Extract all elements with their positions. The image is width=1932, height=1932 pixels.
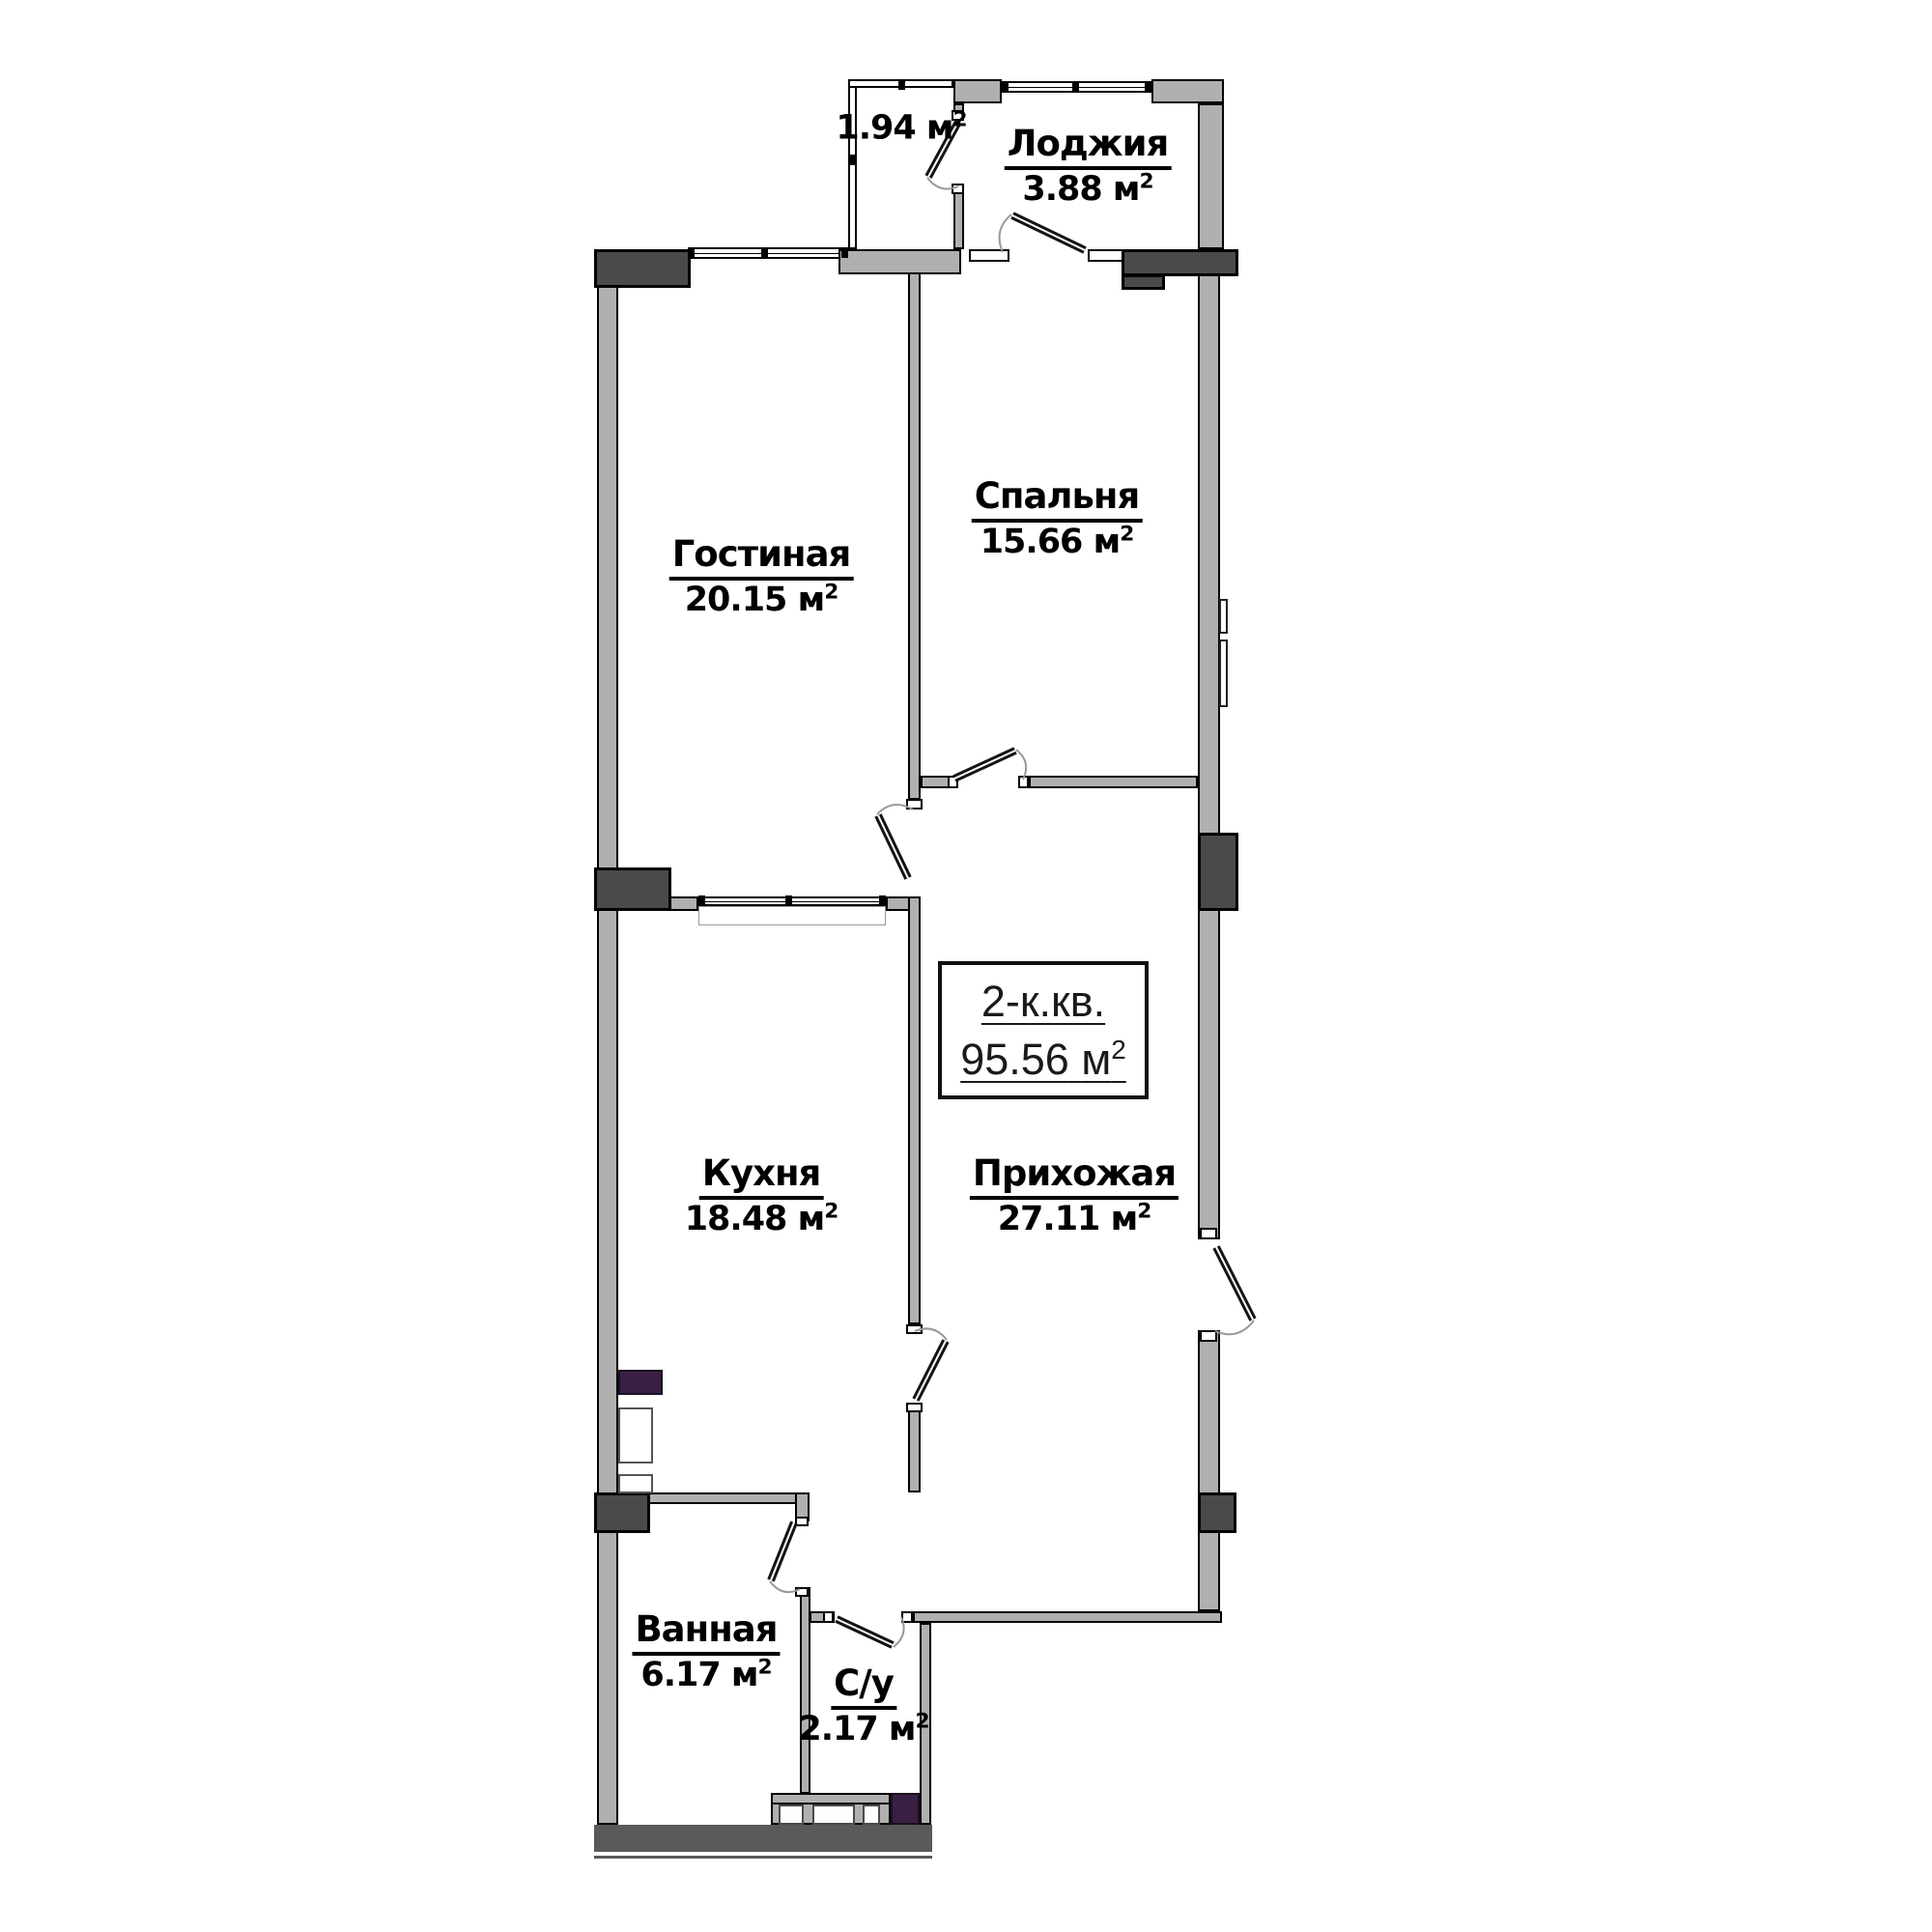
mullion [1072,81,1079,92]
vent-bottom-c [863,1804,880,1825]
mullion [761,247,768,258]
mullion [698,895,705,906]
wall-hall-bottom [913,1611,1222,1623]
column-top-left [594,249,691,288]
apartment-summary-box: 2-к.кв. 95.56 м2 [938,961,1149,1099]
cap-bedroom-door-right [1018,776,1029,788]
room-area: 27.11 м2 [970,1200,1179,1239]
room-label-balcony: 1.94 м2 [836,108,966,148]
vent-bottom-b [812,1804,855,1825]
wall-bedroom-stub [921,776,950,788]
column-left-lower [594,1492,650,1533]
mullion [879,895,886,906]
door-leaf-wc [837,1619,893,1645]
cap-kitchen-door-bottom [906,1403,923,1412]
wall-kitchen-right-upper [908,896,921,1324]
wall-balcony-loggia-lower [953,185,964,249]
cap-bath-door-bottom [795,1587,809,1597]
floor-plan: 1.94 м2 Лоджия 3.88 м2 Спальня 15.66 м2 … [0,0,1932,1932]
living-window [688,247,848,259]
column-right-lower [1198,1492,1236,1533]
room-area: 3.88 м2 [1005,170,1172,210]
cap-bedroom-door-left [948,776,958,788]
mullion [1002,81,1009,92]
room-area: 20.15 м2 [669,581,854,620]
bedroom-window-left [969,249,1009,262]
wall-kitchen-top-left [669,896,698,911]
column-top-right-b [1122,274,1165,290]
arc-loggia-bedroom-door [1000,214,1011,252]
door-leaf-bedroom [954,751,1015,779]
cap-wc-door-right [901,1611,913,1623]
room-name: Ванная [632,1608,780,1656]
door-leaf-living [878,815,908,878]
room-label-loggia: Лоджия 3.88 м2 [1005,123,1172,210]
cap-entry-door-top [1200,1228,1217,1239]
column-mid-left [594,867,671,911]
shaft-kitchen-a [618,1407,653,1463]
room-name: Лоджия [1005,123,1172,170]
door-leaves [771,122,1253,1645]
accent-block-kitchen [618,1370,663,1395]
room-area: 2.17 м2 [798,1710,928,1749]
room-name: Гостиная [669,533,854,581]
mullion [688,247,695,258]
door-leaf-kitchen [916,1341,946,1400]
room-label-wc: С/у 2.17 м2 [798,1662,928,1749]
room-name: Спальня [972,475,1143,523]
wall-right-exterior-upper [1198,249,1220,1239]
cap-balcony-door-bottom [952,184,964,194]
room-label-living: Гостиная 20.15 м2 [669,533,854,620]
room-label-bedroom: Спальня 15.66 м2 [972,475,1143,562]
mullion [785,895,792,906]
cap-kitchen-door-top [906,1324,923,1334]
cap-living-wall-end [906,799,923,810]
room-name: С/у [831,1662,896,1710]
cap-entry-door-bottom [1200,1330,1217,1342]
mullion [841,247,848,258]
wall-right-exterior-lower [1198,1330,1220,1611]
wall-left-exterior [597,249,618,1825]
door-leaf-bath [771,1522,794,1580]
apartment-total-area: 95.56 м2 [960,1035,1126,1085]
mullion [898,79,905,90]
wall-top-center-mass [838,249,961,274]
column-right-mid [1198,833,1238,911]
bottom-slab [594,1825,932,1852]
cap-bath-door-top [795,1517,809,1526]
door-leaf-entry [1216,1247,1253,1320]
apartment-type-label: 2-к.кв. [981,977,1105,1027]
kitchen-interior-window [698,896,886,906]
duct-bedroom-a [1219,599,1228,634]
room-label-kitchen: Кухня 18.48 м2 [685,1152,838,1239]
shaft-kitchen-b [618,1474,653,1493]
room-area: 15.66 м2 [972,523,1143,562]
room-area: 6.17 м2 [632,1656,780,1695]
wall-living-right [908,272,921,800]
mullion [849,155,856,165]
duct-bedroom-b [1219,639,1228,707]
door-leaf-loggia-bedroom [1012,215,1085,250]
accent-block-wc [891,1793,920,1825]
room-area: 1.94 м2 [836,108,966,148]
column-top-right-a [1122,249,1238,276]
pier-balcony-loggia [953,79,1002,103]
room-label-hallway: Прихожая 27.11 м2 [970,1152,1179,1239]
wall-kitchen-right-lower [908,1403,921,1492]
wall-bedroom-bottom [1029,776,1198,788]
pier-loggia-right [1151,79,1224,103]
arc-entry-door [1215,1321,1254,1334]
bottom-slab-line [594,1856,932,1859]
wall-loggia-right [1198,103,1224,249]
vent-bottom-a [779,1804,804,1825]
room-area: 18.48 м2 [685,1200,838,1239]
room-name: Кухня [699,1152,824,1200]
kitchen-window-sill [698,906,886,925]
mullion [1145,81,1151,92]
cap-wc-door-left [823,1611,834,1623]
room-name: Прихожая [970,1152,1179,1200]
room-label-bathroom: Ванная 6.17 м2 [632,1608,780,1695]
